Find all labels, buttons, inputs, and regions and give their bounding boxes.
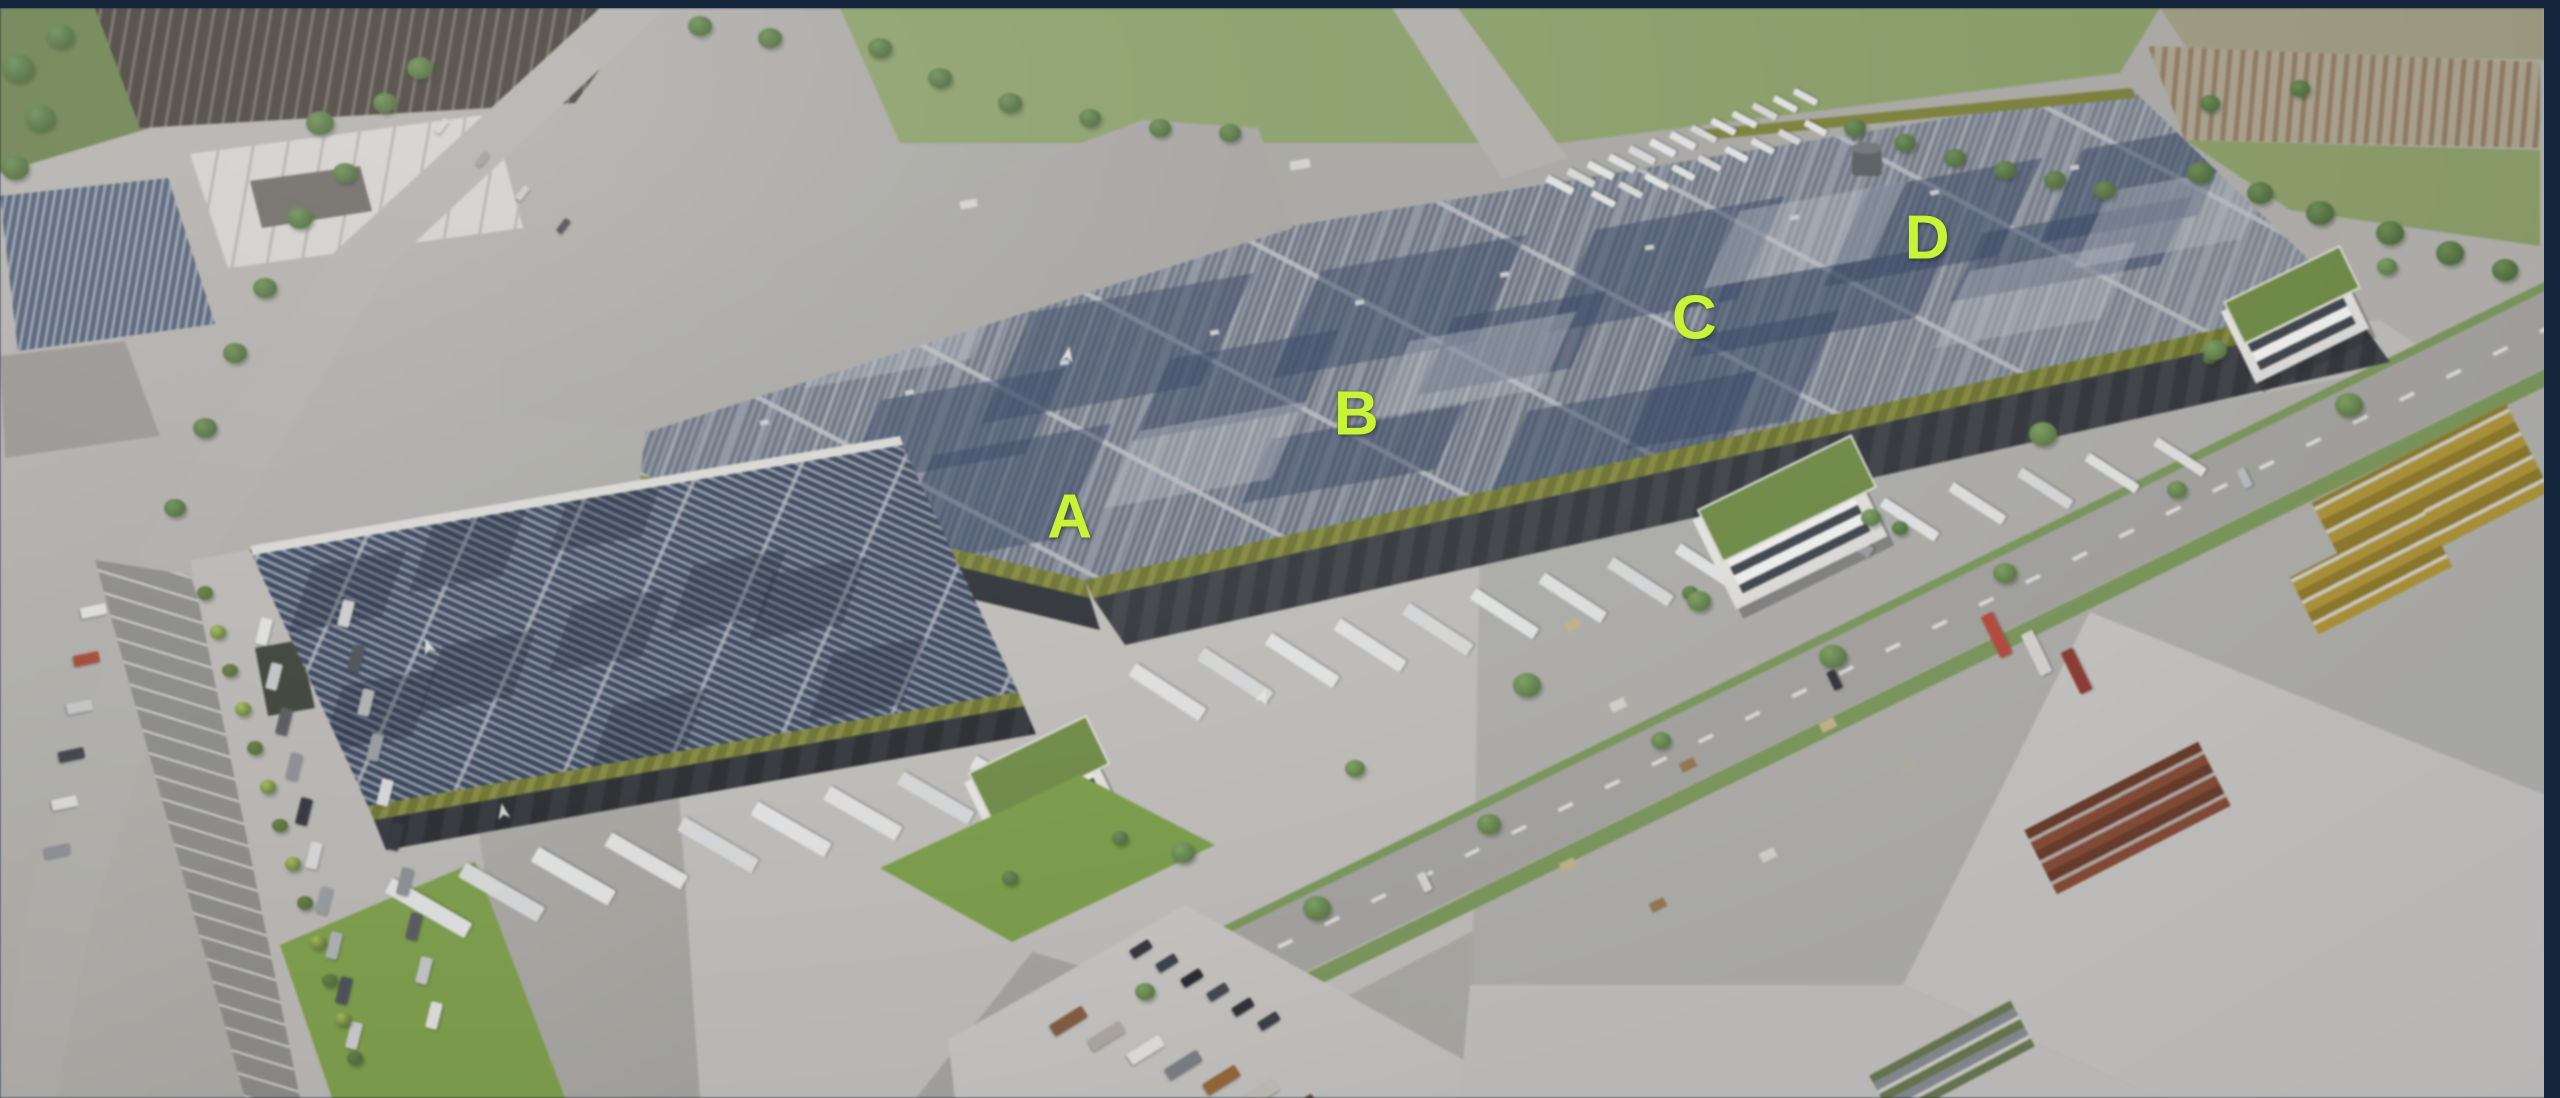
tree [333, 163, 357, 183]
tree [407, 57, 433, 79]
tree [297, 896, 313, 910]
tree [287, 207, 313, 229]
tree [1513, 673, 1541, 697]
tree [1892, 521, 1908, 535]
tree [1, 156, 29, 180]
tree [2436, 241, 2464, 265]
tree [2187, 162, 2213, 184]
frame-border-top [0, 0, 2560, 8]
tree [260, 780, 276, 794]
frame-border-right [2544, 0, 2560, 1098]
tree [1002, 871, 1018, 885]
tree [1994, 161, 2016, 180]
tree [1135, 983, 1155, 1000]
tree [306, 111, 334, 135]
tree [688, 16, 712, 36]
tree [1303, 896, 1331, 920]
tree [1861, 509, 1881, 526]
tree [1993, 563, 2017, 583]
tree [1651, 732, 1671, 749]
tree [1894, 134, 1916, 153]
tree [310, 935, 326, 949]
tree [998, 93, 1022, 113]
tree [1844, 119, 1866, 138]
tree [1944, 149, 1966, 168]
tree [2306, 201, 2334, 225]
tree [46, 24, 74, 48]
solar-array-dark-patch [808, 637, 926, 721]
tree [1079, 109, 1101, 128]
tree [373, 93, 397, 113]
tree [247, 741, 263, 755]
tree [2376, 221, 2404, 245]
logistics-park-scene [0, 8, 2560, 1098]
tree [347, 1051, 363, 1065]
tree [235, 702, 251, 716]
tree [1171, 842, 1195, 862]
tree [2290, 80, 2310, 97]
tree [928, 68, 952, 88]
tree [197, 586, 213, 600]
tree [868, 38, 892, 58]
tree [253, 278, 277, 298]
tree [1477, 814, 1501, 834]
tree [210, 625, 226, 639]
tree [2, 54, 34, 81]
aerial-rendering-screenshot: A B C D [0, 0, 2560, 1098]
tree [1819, 645, 1847, 669]
tree [2203, 340, 2227, 360]
tree [1112, 831, 1128, 845]
tree [2200, 95, 2220, 112]
tree [1149, 119, 1171, 138]
tree [2335, 393, 2363, 417]
tree [164, 499, 186, 518]
tree [2492, 259, 2518, 281]
tree [2247, 182, 2273, 204]
tree [335, 1012, 351, 1026]
solar-array-dark-patch [418, 629, 536, 713]
tree [758, 28, 782, 48]
tree [2044, 171, 2066, 190]
tree [1219, 124, 1241, 143]
tree [2377, 258, 2397, 275]
tree [193, 418, 217, 438]
tree [2029, 422, 2057, 446]
tree [2094, 181, 2116, 200]
solar-array-dark-patch [548, 589, 666, 673]
tree [2167, 481, 2187, 498]
tree [285, 857, 301, 871]
silo-top [1852, 142, 1882, 154]
tree [223, 343, 247, 363]
tree [25, 105, 55, 131]
